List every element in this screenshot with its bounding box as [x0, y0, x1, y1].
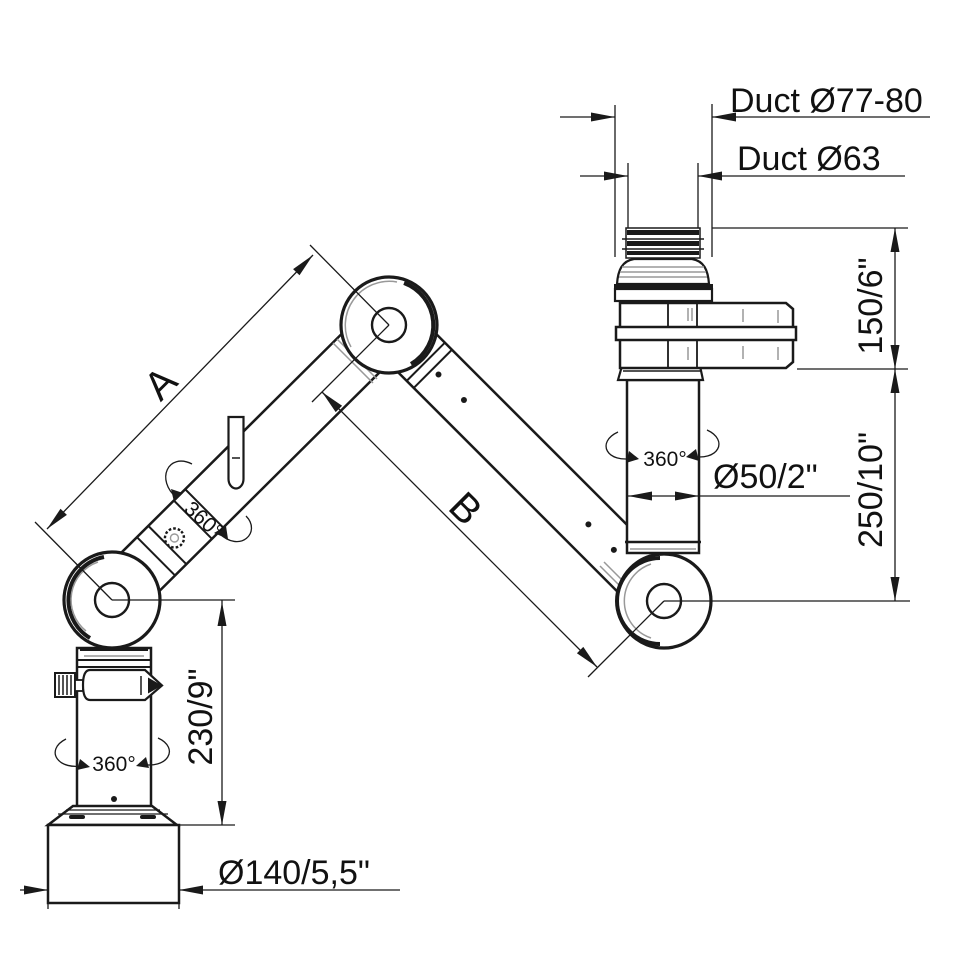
duct-outer-label: Duct Ø77-80: [730, 82, 923, 120]
duct-connector: [622, 228, 704, 258]
arm-a-label: A: [136, 359, 186, 409]
dim-duct-inner: Duct Ø63: [580, 140, 905, 228]
rivet-dot: [111, 796, 117, 802]
tension-lever: [229, 417, 244, 488]
knurled-knob: [55, 673, 75, 697]
tube-diameter-label: Ø50/2": [713, 458, 818, 496]
height-150-label: 150/6": [852, 257, 890, 354]
upper-ring: [615, 289, 712, 301]
rotation-label-column: 360°: [92, 753, 135, 776]
extraction-arm-drawing: 360° 360° 360° Duct Ø77-80 Duct Ø63: [0, 0, 960, 955]
drawing-canvas: 360° 360° 360° Duct Ø77-80 Duct Ø63: [0, 0, 960, 955]
bracket-band: [616, 327, 796, 340]
base-flange: [48, 806, 177, 825]
clamp-handle: [55, 670, 162, 700]
duct-inner-label: Duct Ø63: [737, 140, 881, 178]
bolt-slot: [69, 815, 85, 819]
arm-b-label: B: [440, 484, 490, 534]
base-diameter-label: Ø140/5,5": [218, 854, 370, 892]
flange-bracket-assembly: [614, 259, 796, 380]
base-cylinder: [48, 825, 179, 903]
rotation-label-tube: 360°: [643, 448, 686, 471]
bolt-slot: [140, 815, 156, 819]
dim-arm-a: A: [35, 245, 389, 600]
column-height-label: 230/9": [182, 668, 220, 765]
height-250-label: 250/10": [852, 432, 890, 548]
